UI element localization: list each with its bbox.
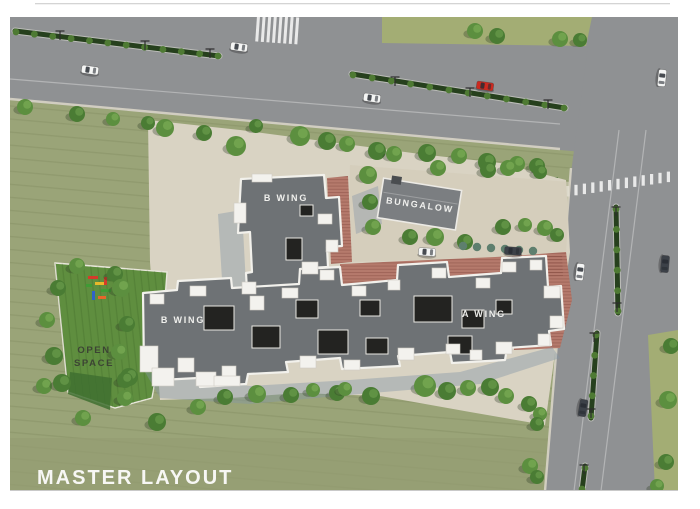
b-wing-left-label: B WING: [161, 315, 205, 325]
median-bush: [104, 40, 111, 47]
median-bush: [178, 48, 185, 55]
open-space-label-line2: SPACE: [74, 358, 114, 369]
median-bush: [426, 84, 433, 91]
median-bush: [484, 93, 491, 100]
play-equipment: [92, 291, 95, 300]
median-bush: [13, 29, 20, 36]
median-bush: [388, 78, 395, 85]
top-rule: [35, 3, 670, 4]
hedge-bush: [473, 243, 481, 251]
median-bush: [160, 46, 167, 53]
median-bush: [123, 42, 130, 49]
site-plan-canvas: B WING B WING A WING BUNGALOW OPEN SPACE…: [0, 0, 700, 509]
median-bush: [615, 308, 622, 315]
play-equipment: [98, 296, 106, 299]
play-equipment: [88, 276, 98, 279]
hedge-bush: [459, 242, 467, 250]
median-hedge: [616, 207, 618, 313]
median-bush: [446, 87, 453, 94]
median-bush: [613, 226, 620, 233]
bottom-rule: [10, 490, 678, 491]
a-wing-label: A WING: [462, 309, 506, 319]
median-bush: [407, 81, 414, 88]
median-bush: [31, 31, 38, 38]
median-bush: [49, 33, 56, 40]
median-bush: [522, 99, 529, 106]
median-bush: [215, 53, 222, 60]
median-bush: [591, 352, 598, 359]
median-bush: [614, 287, 621, 294]
median-bush: [86, 37, 93, 44]
master-layout-plan: B WING B WING A WING BUNGALOW OPEN SPACE…: [0, 0, 700, 509]
bungalow-chimney: [391, 175, 402, 184]
hedge-bush: [529, 247, 537, 255]
median-bush: [589, 392, 596, 399]
median-bush: [582, 465, 589, 472]
median-bush: [614, 267, 621, 274]
play-equipment: [86, 284, 92, 287]
plan-title: MASTER LAYOUT: [37, 467, 233, 489]
median-bush: [561, 105, 568, 112]
median-bush: [350, 72, 357, 79]
median-bush: [613, 246, 620, 253]
median-bush: [196, 50, 203, 57]
b-wing-top-label: B WING: [264, 193, 308, 203]
median-bush: [369, 75, 376, 82]
hedge-bush: [487, 244, 495, 252]
median-bush: [68, 35, 75, 42]
median-bush: [541, 102, 548, 109]
median-bush: [590, 372, 597, 379]
median-bush: [503, 96, 510, 103]
open-space-label-line1: OPEN: [77, 345, 110, 356]
